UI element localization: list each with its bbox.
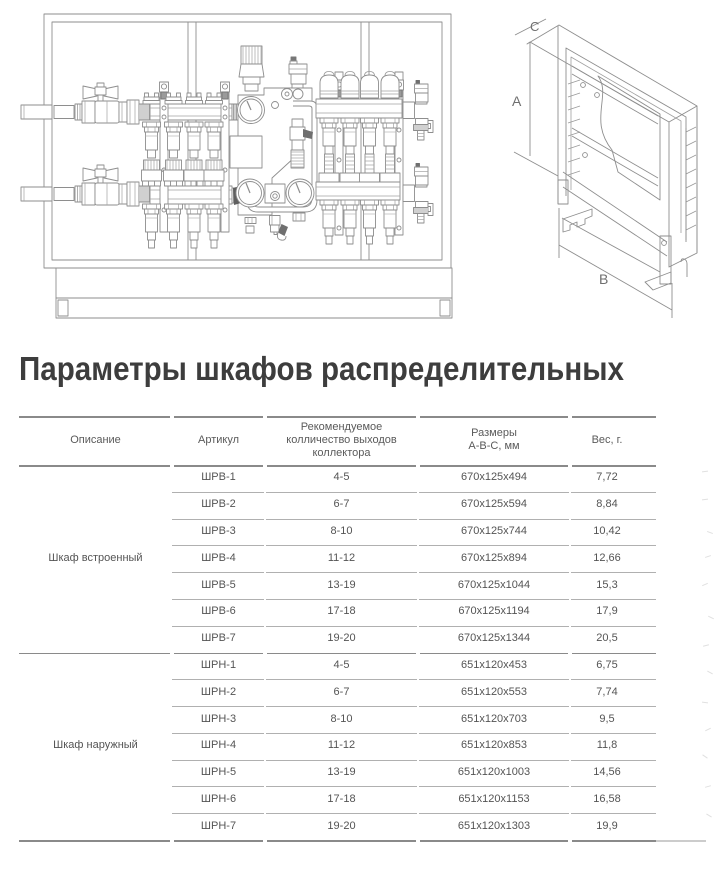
svg-text:C: C <box>530 19 539 34</box>
svg-text:A: A <box>512 93 522 109</box>
svg-text:B: B <box>599 271 608 287</box>
